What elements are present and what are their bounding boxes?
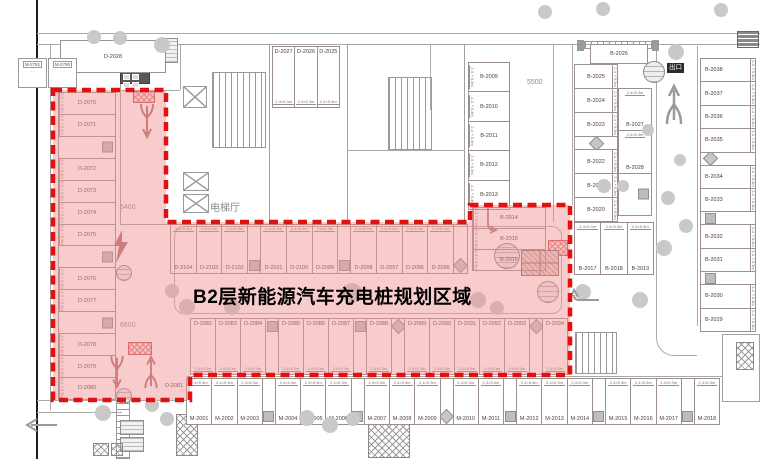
structural-column-box	[266, 319, 279, 374]
stall-b-2016: B-20162.4×5.3m	[473, 250, 545, 270]
structural-column-box	[338, 225, 351, 273]
stall-label: D-2072	[78, 166, 96, 172]
stall-label: M-2011	[482, 416, 500, 422]
stall-dimension: 2.4×5.3m	[633, 381, 654, 386]
stall-label: B-2020	[587, 207, 605, 213]
stall-label: B-2022	[587, 159, 605, 165]
column-diamond-icon	[392, 319, 405, 334]
stall-dimension: 2.4×5.3m	[59, 290, 64, 312]
structural-column-dot	[299, 410, 315, 426]
column-square-icon	[705, 273, 716, 284]
stall-dimension: 2.4×5.3m	[263, 227, 284, 232]
stall-label: D-2085	[282, 321, 300, 327]
stall-label: D-2084	[244, 321, 262, 327]
structural-column-box	[701, 272, 755, 285]
stall-d-2025: D-20252.4×5.3m	[318, 47, 339, 107]
stall-dimension: 2.4×5.3m	[59, 115, 64, 137]
stall-label: B-2034	[705, 174, 723, 180]
core-east-wall	[430, 44, 431, 110]
stall-b-2012: B-20122.4×5.3m	[469, 151, 509, 180]
stall-b-2028: B-20282.4×5.3m	[619, 131, 651, 173]
right-lane-west	[656, 46, 657, 326]
stall-d-2104: D-21042.4×5.3m	[171, 225, 197, 273]
stall-label: M-2010	[456, 416, 475, 422]
stall-label: D-2091	[458, 321, 476, 327]
structural-column-dot	[87, 30, 101, 44]
stall-dimension: 2.4×5.3m	[750, 82, 755, 105]
stall-dimension: 2.4×5.3m	[481, 381, 502, 386]
stall-label: D-2081	[165, 383, 183, 389]
stall-label: B-2035	[705, 137, 723, 143]
stall-m-2016: M-20162.4×5.3m	[631, 379, 656, 424]
stall-label: M-2018	[698, 416, 717, 422]
structural-column-dot	[596, 2, 610, 16]
stair-bottom-mid	[575, 332, 617, 374]
inner-right-stalls: B-20092.4×5.3mB-20102.4×5.3mB-20112.4×5.…	[468, 62, 510, 210]
stall-label: D-2101	[264, 265, 282, 271]
column-diamond-icon	[703, 153, 719, 166]
structural-column-box	[701, 212, 755, 225]
stall-dimension: 2.4×5.3m	[658, 381, 679, 386]
stall-label: B-2036	[705, 114, 723, 120]
stall-label: D-2027	[275, 49, 293, 55]
aisle-dim-5500: 5500	[527, 79, 543, 86]
stall-b-2023: B-20232.4×5.3m	[575, 113, 617, 137]
charge-circle-left-2	[116, 388, 132, 404]
stall-m-2008: M-20082.4×5.3m	[390, 379, 415, 424]
elevator-hall-label: 电梯厅	[210, 199, 240, 214]
stall-dimension: 2.4×5.3m	[306, 367, 327, 372]
stall-dimension: 2.4×5.3m	[750, 129, 755, 152]
stall-dimension: 2.4×5.3m	[218, 367, 239, 372]
stall-dimension: 2.4×5.3m	[59, 334, 64, 356]
stall-label: D-2078	[78, 342, 96, 348]
stall-dimension: 2.4×5.3m	[189, 381, 210, 386]
stall-d-2026: D-20262.4×5.3m	[295, 47, 317, 107]
stall-label: M-2012	[520, 416, 539, 422]
stall-label: D-2090	[433, 321, 451, 327]
core-east-wall2	[347, 150, 465, 151]
stall-label: D-2099	[316, 265, 334, 271]
stall-dimension: 2.4×5.3m	[750, 59, 755, 82]
column-square-icon	[102, 317, 113, 328]
stall-d-2074: D-20742.4×5.3m	[59, 203, 115, 225]
stall-label: M-2014	[570, 416, 589, 422]
stall-d-2090: D-20902.4×5.3m	[430, 319, 455, 374]
stall-dimension: 2.4×5.3m	[224, 227, 245, 232]
bottom-road	[186, 376, 760, 377]
stall-label: B-2010	[480, 104, 498, 110]
stall-label: B-2032	[705, 234, 723, 240]
stall-dimension: 2.4×5.3m	[59, 203, 64, 225]
stall-dimension: 2.4×5.3m	[750, 285, 755, 308]
stall-dimension: 2.4×5.3m	[473, 250, 478, 270]
stall-m-2007: M-20072.4×5.3m	[365, 379, 390, 424]
structural-column-dot	[165, 284, 179, 298]
structural-column-diamond	[575, 137, 617, 150]
stall-b-2017: B-20172.4×5.3m	[575, 223, 601, 274]
stall-dimension: 2.4×5.3m	[59, 181, 64, 203]
stall-label: D-2093	[508, 321, 526, 327]
stall-d-2099: D-20992.4×5.3m	[313, 225, 339, 273]
stall-label: B-2028	[626, 165, 644, 171]
structural-column-dot	[346, 412, 360, 426]
stall-label: D-2071	[78, 122, 96, 128]
stall-label: B-2014	[500, 215, 518, 221]
structural-column-diamond	[454, 225, 467, 273]
stall-dimension: 2.4×5.3m	[318, 100, 339, 105]
stall-d-2101: D-21012.4×5.3m	[261, 225, 287, 273]
stall-m-2011: M-20112.4×5.3m	[479, 379, 504, 424]
col-b-stalls: B-20382.4×5.3mB-20372.4×5.3mB-20362.4×5.…	[700, 58, 756, 332]
column-square-icon	[267, 321, 278, 332]
stall-label: D-2074	[78, 210, 96, 216]
stall-label: M-2015	[609, 416, 628, 422]
stall-b-2025: B-20252.4×5.3m	[575, 65, 617, 89]
stall-unlabeled	[59, 312, 115, 334]
stall-dimension: 2.4×5.3m	[750, 189, 755, 212]
stall-dimension: 2.4×5.3m	[457, 367, 478, 372]
stall-dimension: 2.4×5.3m	[469, 95, 474, 118]
room-label: M-2780	[53, 61, 72, 68]
stall-dimension: 2.4×5.3m	[697, 381, 718, 386]
stall-label: B-2009	[480, 74, 498, 80]
stall-label: B-2027	[626, 122, 644, 128]
column-square-icon	[102, 142, 113, 153]
stall-label: D-2076	[78, 276, 96, 282]
exit-arrow-icon	[658, 82, 690, 128]
stall-label: D-2095	[432, 265, 450, 271]
stall-d-2027: D-20272.4×5.3m	[273, 47, 295, 107]
stall-d-2073: D-20732.4×5.3m	[59, 181, 115, 203]
lane-wall-2	[572, 44, 573, 205]
stall-label: D-2077	[78, 298, 96, 304]
stall-dimension: 2.4×5.3m	[569, 381, 590, 386]
planning-area-title: B2层新能源汽车充电桩规划区域	[193, 282, 472, 309]
left-wall	[50, 44, 51, 410]
right-lane-east	[697, 46, 698, 326]
structural-column-dot	[617, 180, 629, 192]
stall-d-2084: D-20842.4×5.3m	[241, 319, 266, 374]
stall-label: D-2086	[307, 321, 325, 327]
stall-m-2014: M-20142.4×5.3m	[568, 379, 593, 424]
lane-wall-1	[553, 44, 554, 222]
structural-column-dot	[113, 31, 127, 45]
charge-circle-left-1	[116, 265, 132, 281]
structural-column-dot	[656, 240, 672, 256]
stall-label: D-2073	[78, 188, 96, 194]
col-a-stalls: B-20252.4×5.3mB-20242.4×5.3mB-20232.4×5.…	[574, 64, 618, 222]
stall-m-2015: M-20152.4×5.3m	[606, 379, 631, 424]
stall-dimension: 2.4×5.3m	[379, 227, 400, 232]
elevator-shaft-3	[183, 194, 209, 213]
stall-dimension: 2.4×5.3m	[59, 378, 64, 399]
structural-column-dot	[674, 154, 686, 166]
stall-d-2077: D-20772.4×5.3m	[59, 290, 115, 312]
stall-label: M-2016	[634, 416, 653, 422]
column-diamond-icon	[530, 319, 543, 334]
shaft-bottom-mid	[368, 424, 410, 458]
stall-dimension: 2.4×5.3m	[289, 227, 310, 232]
structural-column-dot	[95, 405, 111, 421]
column-square-icon	[705, 213, 716, 224]
core-west-wall	[180, 44, 181, 90]
structural-column-diamond	[392, 319, 405, 374]
stall-m-2012: M-20122.4×5.3m	[517, 379, 542, 424]
stall-dimension: 2.4×5.3m	[469, 65, 474, 88]
structural-column-dot	[642, 124, 654, 136]
stall-dimension: 2.4×5.3m	[432, 367, 453, 372]
stall-b-2035: B-20352.4×5.3m	[701, 129, 755, 152]
stall-label: B-2017	[579, 266, 597, 272]
equip-box-bl-2	[120, 437, 144, 452]
stall-label: M-2007	[368, 416, 387, 422]
stall-m-2010: M-20102.4×5.3m	[454, 379, 479, 424]
column-square-icon	[638, 189, 649, 200]
structural-column-dot	[714, 3, 728, 17]
stall-dimension: 2.4×5.3m	[366, 381, 387, 386]
stall-b-2010: B-20102.4×5.3m	[469, 92, 509, 121]
stall-d-2070: D-20702.4×5.3m	[59, 93, 115, 115]
structural-column-dot	[154, 37, 170, 53]
stall-dimension: 2.4×5.3m	[455, 381, 476, 386]
stall-d-2082: D-20822.4×5.3m	[191, 319, 216, 374]
top-road-line-1	[37, 33, 760, 34]
column-diamond-icon	[588, 137, 604, 150]
stall-d-2094: D-20942.4×5.3m	[543, 319, 567, 374]
stall-label: D-2088	[370, 321, 388, 327]
small-room-1: M-2781 ····	[18, 58, 47, 88]
stall-d-2102: D-21022.4×5.3m	[222, 225, 248, 273]
equip-box-bl-4	[111, 443, 123, 456]
stall-d-2103: D-21032.4×5.3m	[197, 225, 223, 273]
floor-plan-canvas: D-20702.4×5.3mD-20712.4×5.3mD-20722.4×5.…	[0, 0, 760, 459]
stall-dimension: 2.4×5.3m	[750, 225, 755, 248]
stall-label: M-2017	[659, 416, 678, 422]
stall-d-2095: D-20952.4×5.3m	[428, 225, 454, 273]
stall-b-2018: B-20182.4×5.3m	[601, 223, 627, 274]
stall-d-2098: D-20982.4×5.3m	[351, 225, 377, 273]
stall-unlabeled	[59, 246, 115, 268]
structural-column-dot	[322, 417, 338, 433]
stall-b-2031: B-20312.4×5.3m	[701, 249, 755, 272]
stall-label: B-2019	[631, 266, 649, 272]
stall-dimension: 2.4×5.3m	[243, 367, 264, 372]
stall-label: B-2033	[705, 197, 723, 203]
structural-column-dot	[490, 301, 504, 315]
structural-column-box	[248, 225, 261, 273]
stall-m-2013: M-20132.4×5.3m	[542, 379, 567, 424]
structural-column-dot	[668, 44, 684, 60]
stall-dimension: 2.4×5.3m	[612, 113, 617, 136]
stall-dimension: 2.4×5.3m	[469, 183, 474, 206]
lane-arrow-icon-2	[102, 352, 132, 390]
stall-label: D-2026	[297, 49, 315, 55]
stall-dimension: 2.4×5.3m	[545, 367, 566, 372]
stall-dimension: 2.4×5.3m	[296, 100, 317, 105]
column-square-icon	[593, 411, 604, 422]
stall-b-2036: B-20362.4×5.3m	[701, 106, 755, 129]
stall-m-2017: M-20172.4×5.3m	[657, 379, 682, 424]
structural-column-diamond	[530, 319, 543, 374]
structural-column-dot	[160, 412, 174, 426]
stall-dimension: 2.4×5.3m	[507, 367, 528, 372]
stall-unlabeled	[59, 137, 115, 159]
stall-dimension: 2.4×5.3m	[630, 225, 651, 230]
column-square-icon	[339, 260, 350, 271]
stall-dimension: 2.4×5.3m	[59, 268, 64, 290]
equip-circle-2	[537, 281, 559, 303]
structural-column-dot	[470, 292, 486, 308]
stall-b-2009: B-20092.4×5.3m	[469, 63, 509, 92]
elevator-shaft-1	[183, 86, 207, 108]
right-lane-curve	[656, 300, 697, 356]
stall-dimension: 2.4×5.3m	[482, 367, 503, 372]
stall-label: D-2079	[78, 364, 96, 370]
stall-m-2004: M-20042.4×5.3m	[276, 379, 301, 424]
stall-label: D-2098	[355, 265, 373, 271]
stall-d-2088: D-20882.4×5.3m	[367, 319, 392, 374]
stall-d-2091: D-20912.4×5.3m	[455, 319, 480, 374]
stall-dimension: 2.4×5.3m	[612, 65, 617, 88]
stall-d-2076: D-20762.4×5.3m	[59, 268, 115, 290]
stall-label: M-2009	[418, 416, 437, 422]
structural-column-box	[263, 379, 276, 424]
bottom-row-stalls: D-20822.4×5.3mD-20832.4×5.3mD-20842.4×5.…	[190, 318, 568, 375]
stall-m-2003: M-20032.4×5.3m	[238, 379, 263, 424]
stall-dimension: 2.4×5.3m	[577, 225, 598, 230]
stall-dimension: 2.4×5.3m	[469, 124, 474, 147]
stall-dimension: 2.4×5.3m	[59, 356, 64, 378]
stall-dimension: 2.4×5.3m	[369, 367, 390, 372]
stall-b-2030: B-20302.4×5.3m	[701, 285, 755, 308]
structural-column-dot	[145, 398, 159, 412]
stall-label: B-2023	[587, 122, 605, 128]
barrier-cap-2	[652, 40, 659, 51]
m-row-stalls: M-20012.4×5.3mM-20022.4×5.3mM-20032.4×5.…	[186, 378, 720, 425]
column-diamond-icon	[454, 258, 467, 273]
stall-dimension: 2.4×5.3m	[407, 367, 428, 372]
hook-arrow-icon	[478, 206, 498, 236]
stall-d-2075: D-20752.4×5.3m	[59, 225, 115, 247]
structural-column-diamond	[701, 153, 755, 166]
stall-label: D-2103	[200, 265, 218, 271]
stall-label: B-2011	[480, 133, 497, 139]
stall-label: D-2082	[194, 321, 212, 327]
stall-label: B-2037	[705, 91, 723, 97]
stall-label: D-2080	[78, 385, 96, 391]
lane-arrow-icon	[132, 100, 162, 140]
stall-b-2020: B-20202.4×5.3m	[575, 198, 617, 221]
bottom-left-road-1	[37, 400, 187, 401]
stall-dimension: 2.4×5.3m	[625, 133, 646, 138]
stall-b-2013: B-20132.4×5.3m	[469, 181, 509, 209]
equip-box-bl-3	[93, 443, 109, 456]
stall-m-2002: M-20022.4×5.3m	[212, 379, 237, 424]
stall-dimension: 2.4×5.3m	[392, 381, 413, 386]
elevator-shaft-2	[183, 172, 209, 191]
stall-label: D-2075	[78, 232, 96, 238]
aisle-dim-5400: 5400	[120, 204, 136, 211]
stall-label: B-2031	[705, 257, 723, 263]
room-subtext: ····	[60, 70, 65, 74]
column-square-icon	[505, 411, 516, 422]
lane-arrow-icon-3	[136, 354, 166, 392]
col-a2-stalls: B-20272.4×5.3mB-20282.4×5.3m	[618, 88, 652, 216]
structural-column-dot	[597, 179, 611, 193]
stall-b-2032: B-20322.4×5.3m	[701, 225, 755, 248]
stall-label: B-2012	[480, 162, 498, 168]
structural-column-box	[593, 379, 606, 424]
stall-d-2092: D-20922.4×5.3m	[480, 319, 505, 374]
stall-label: M-2002	[215, 416, 234, 422]
stall-d-2072: D-20722.4×5.3m	[59, 159, 115, 181]
room-subtext: ····	[30, 70, 35, 74]
stall-dimension: 2.4×5.3m	[278, 381, 299, 386]
stall-dimension: 2.4×5.3m	[469, 154, 474, 177]
stall-label: B-2025	[587, 74, 605, 80]
column-square-icon	[263, 411, 274, 422]
stall-b-2019: B-20192.4×5.3m	[628, 223, 653, 274]
stall-label: B-2024	[587, 98, 605, 104]
room-label: M-2781	[23, 61, 42, 68]
stall-label: D-2104	[174, 265, 192, 271]
stall-dimension: 2.4×5.3m	[59, 225, 64, 247]
stall-label: M-2013	[545, 416, 564, 422]
structural-column-box	[682, 379, 695, 424]
stall-b-2038: B-20382.4×5.3m	[701, 59, 755, 82]
stall-label: D-2070	[78, 100, 96, 106]
stall-label: D-2094	[546, 321, 564, 327]
structural-column-box	[354, 319, 367, 374]
stall-label: D-2102	[226, 265, 244, 271]
stair-east	[388, 77, 432, 150]
stall-d-2083: D-20832.4×5.3m	[216, 319, 241, 374]
stair-west	[212, 72, 266, 148]
stall-label: B-2015	[500, 236, 518, 242]
stall-label: B-2013	[480, 192, 498, 198]
column-diamond-icon	[441, 409, 454, 424]
stall-label: B-2016	[500, 257, 518, 263]
turntable-icon	[643, 61, 665, 83]
structural-column-dot	[538, 5, 552, 19]
structural-column-dot	[632, 292, 648, 308]
lightning-icon	[112, 230, 130, 264]
stall-dimension: 2.4×5.3m	[625, 91, 646, 96]
stall-label: D-2097	[380, 265, 398, 271]
stall-d-2071: D-20712.4×5.3m	[59, 115, 115, 137]
mid-row-stalls: D-21042.4×5.3mD-21032.4×5.3mD-21022.4×5.…	[170, 224, 468, 274]
stall-dimension: 2.4×5.3m	[273, 100, 294, 105]
small-room-2: M-2780 ····	[48, 58, 77, 88]
stall-d-2100: D-21002.4×5.3m	[287, 225, 313, 273]
stall-label: D-2083	[219, 321, 237, 327]
stall-label: D-2092	[483, 321, 501, 327]
stall-dimension: 2.4×5.3m	[430, 227, 451, 232]
stall-b-2029: B-20292.4×5.3m	[701, 309, 755, 331]
stall-dimension: 2.4×5.3m	[281, 367, 302, 372]
stall-dimension: 2.4×5.3m	[214, 381, 235, 386]
stall-b-2024: B-20242.4×5.3m	[575, 89, 617, 113]
stall-dimension: 2.4×5.3m	[193, 367, 214, 372]
stall-m-2001: M-20012.4×5.3m	[187, 379, 212, 424]
stall-label: B-2026	[610, 51, 628, 57]
stall-dimension: 2.4×5.3m	[750, 309, 755, 331]
stall-dimension: 2.4×5.3m	[750, 166, 755, 189]
stall-b-2026: B-2026	[590, 44, 648, 64]
stall-dimension: 2.4×5.3m	[417, 381, 438, 386]
column-square-icon	[682, 411, 693, 422]
